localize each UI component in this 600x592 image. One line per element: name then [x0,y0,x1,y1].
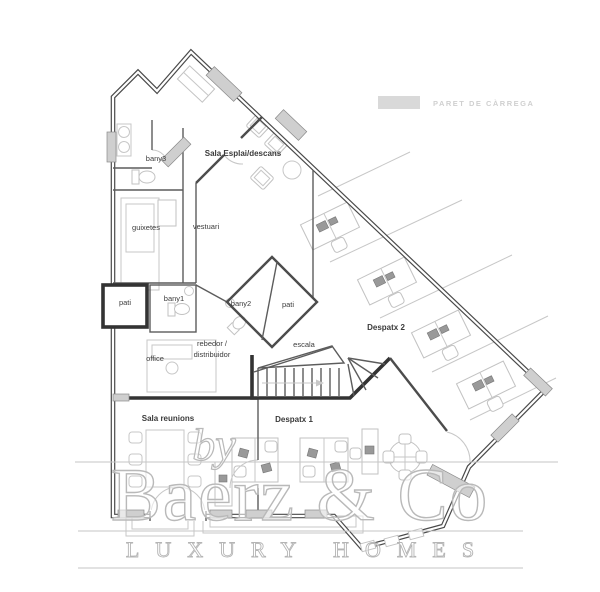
room-label-guixetes: guixetes [132,223,160,232]
floorplan-image: PARET DE CÀRREGA [0,0,600,592]
legend-label: PARET DE CÀRREGA [433,99,534,108]
room-label-bany1: bany1 [164,294,184,303]
room-label-vestuari: vestuari [193,222,220,231]
esplai-round-table [283,161,301,179]
locker-cabinet [121,198,159,290]
room-label-despatx2: Despatx 2 [367,323,405,332]
room-label-rebedor: rebedor / [197,339,228,348]
room-label-sala-reunions: Sala reunions [142,414,195,423]
room-label-despatx1: Despatx 1 [275,415,313,424]
room-label-escala: escala [293,340,316,349]
room-label-pati-left: pati [119,298,131,307]
floor-plan: PARET DE CÀRREGA [0,0,600,592]
esplai-armchair [250,166,274,190]
room-label-bany2: bany2 [231,299,251,308]
legend-swatch [378,96,420,109]
legend: PARET DE CÀRREGA [378,96,534,109]
room-label-distribuidor: distribuidor [194,350,231,359]
room-label-bany3: bany3 [146,154,166,163]
watermark-brand: Baerz & Co [111,454,489,537]
room-label-pati-right: pati [282,300,294,309]
room-label-office: office [146,354,164,363]
office-chair [166,362,178,374]
watermark-tagline: LUXURY HOMES [126,537,490,562]
room-label-sala-esplai: Sala Esplai/descans [205,149,282,158]
bench [158,200,176,226]
